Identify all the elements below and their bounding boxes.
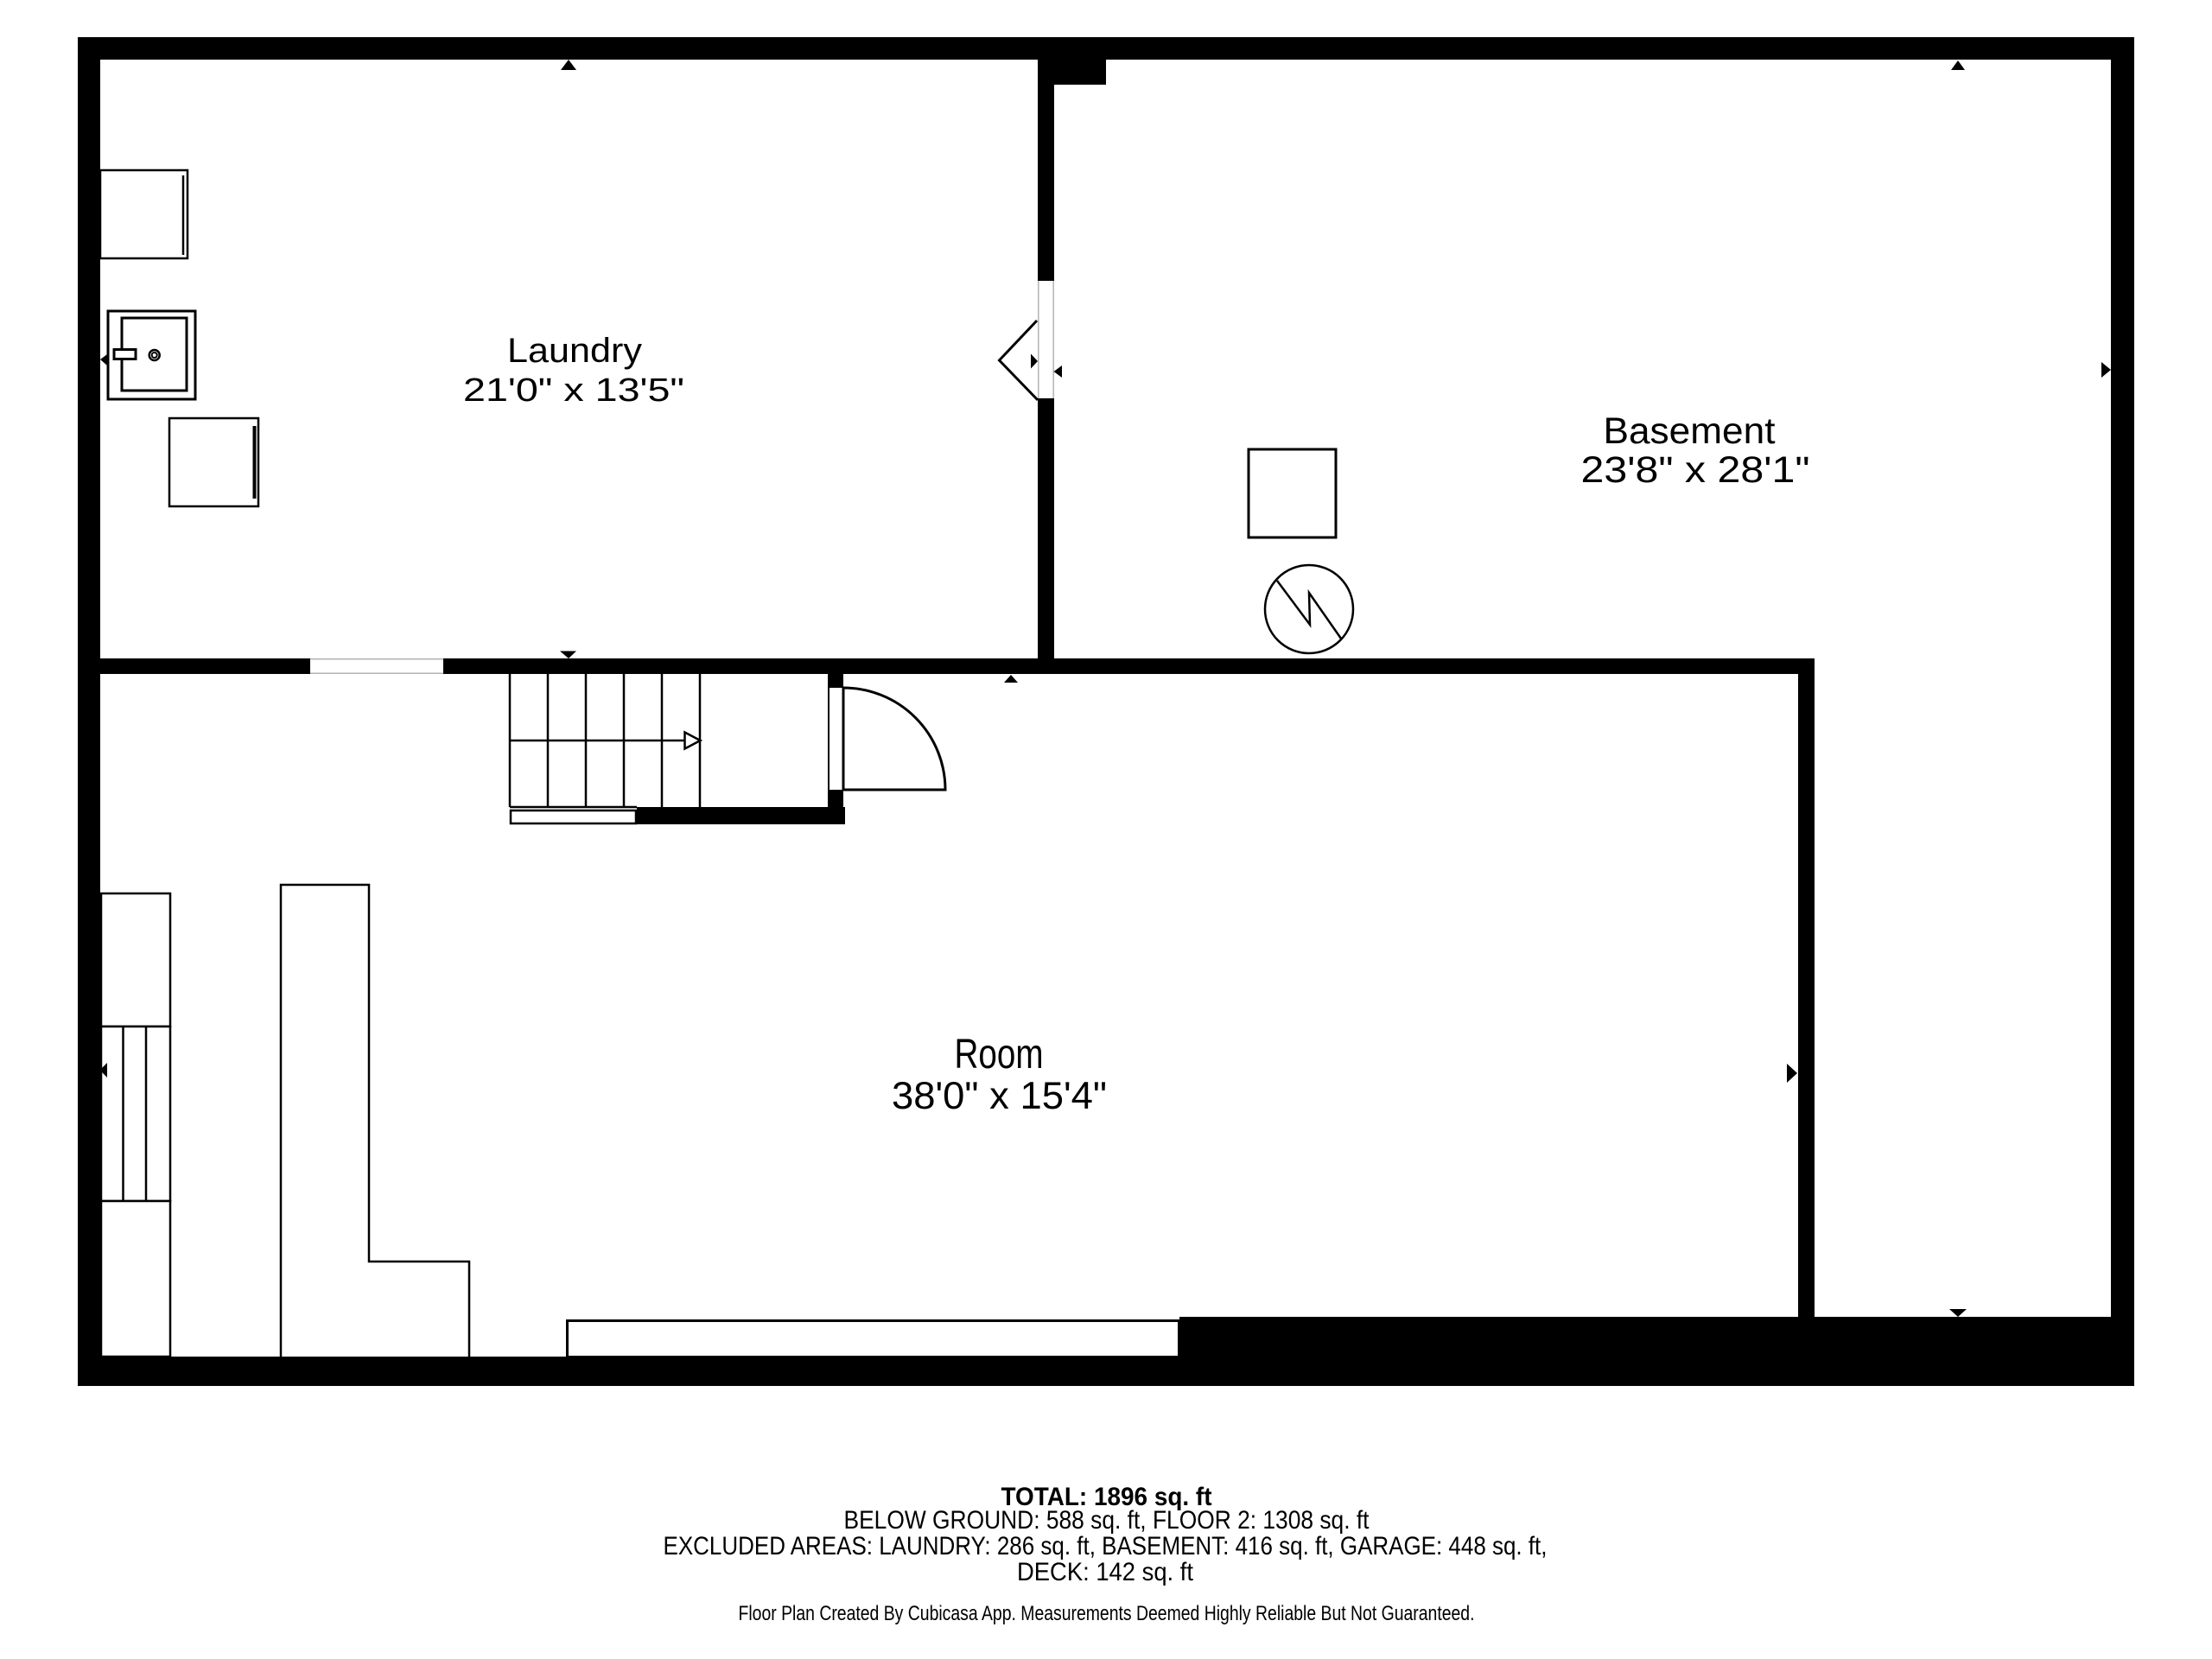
svg-text:Room: Room bbox=[955, 1032, 1044, 1077]
svg-text:Laundry: Laundry bbox=[507, 332, 642, 370]
svg-text:38'0" x 15'4": 38'0" x 15'4" bbox=[892, 1075, 1107, 1117]
svg-text:21'0" x 13'5": 21'0" x 13'5" bbox=[463, 372, 684, 409]
svg-text:BELOW GROUND: 588 sq. ft, FLOO: BELOW GROUND: 588 sq. ft, FLOOR 2: 1308 … bbox=[844, 1506, 1370, 1535]
svg-text:Basement: Basement bbox=[1604, 411, 1776, 452]
svg-text:EXCLUDED AREAS: LAUNDRY: 286 s: EXCLUDED AREAS: LAUNDRY: 286 sq. ft, BAS… bbox=[664, 1532, 1548, 1560]
svg-text:23'8" x 28'1": 23'8" x 28'1" bbox=[1581, 450, 1810, 491]
svg-text:DECK: 142 sq. ft: DECK: 142 sq. ft bbox=[1017, 1558, 1194, 1586]
svg-text:Floor Plan Created By Cubicasa: Floor Plan Created By Cubicasa App. Meas… bbox=[739, 1602, 1475, 1625]
